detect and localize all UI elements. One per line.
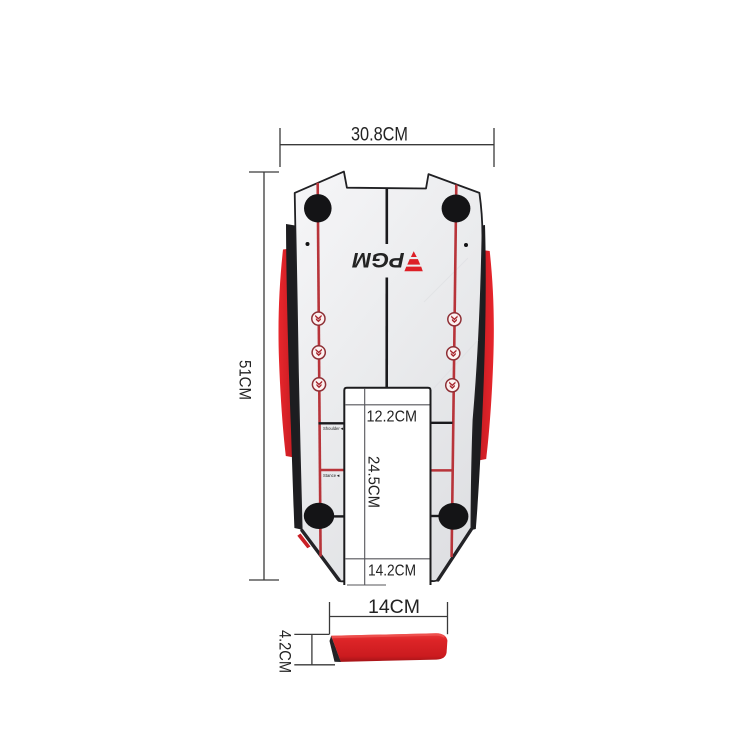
svg-text:14.2CM: 14.2CM [368,563,416,580]
svg-text:Shoulder◄: Shoulder◄ [323,426,344,431]
svg-text:24.5CM: 24.5CM [365,456,382,508]
svg-text:Stance◄: Stance◄ [323,473,340,478]
svg-text:4.2CM: 4.2CM [276,630,295,673]
svg-text:12.2CM: 12.2CM [367,409,418,426]
svg-text:30.8CM: 30.8CM [351,125,408,146]
svg-text:51CM: 51CM [236,360,255,400]
svg-text:PGM: PGM [352,248,405,271]
svg-text:14CM: 14CM [368,597,420,618]
